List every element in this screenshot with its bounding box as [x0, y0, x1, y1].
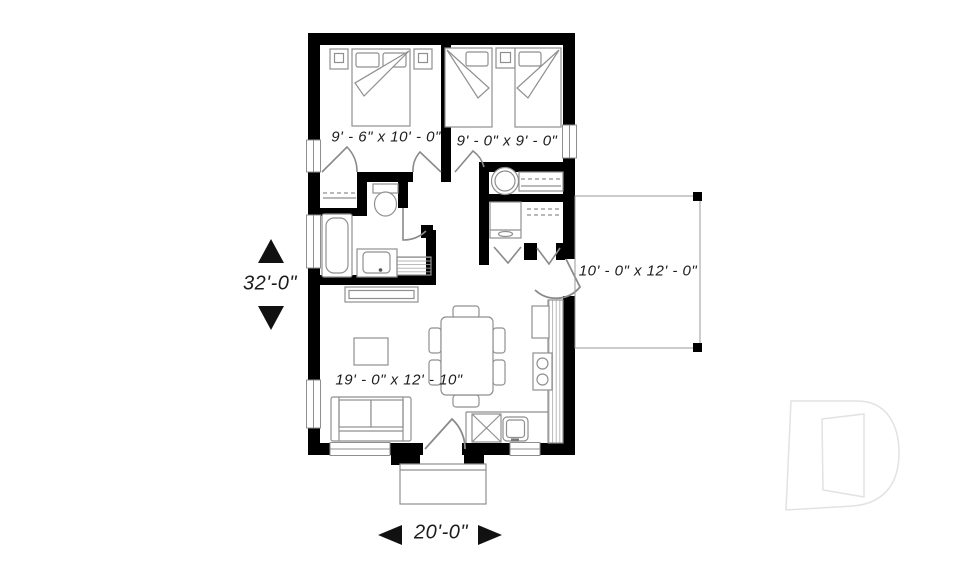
vanity-sink [357, 249, 397, 277]
dresser [490, 202, 521, 238]
nightstand [414, 49, 432, 69]
wall-segment [479, 162, 489, 265]
washer [492, 168, 519, 195]
toilet [373, 184, 398, 216]
bathroom-counter [397, 257, 431, 275]
twin-bed [445, 48, 492, 127]
dishwasher [472, 414, 501, 442]
wall-segment [563, 296, 575, 443]
wall-segment [484, 194, 563, 202]
patio-dimension-label: 10' - 0" x 12' - 0" [579, 263, 697, 280]
dim-arrow-left [378, 525, 402, 545]
console-table [345, 287, 418, 302]
door-swing [322, 147, 357, 172]
pillow [466, 52, 488, 66]
floor-plan: 9' - 6" x 10' - 0" 9' - 0" x 9' - 0" 19'… [0, 0, 960, 569]
overall-height-label: 32'-0" [243, 273, 297, 296]
sofa [331, 397, 411, 441]
bathtub [322, 214, 352, 277]
stove [533, 353, 552, 390]
dim-arrow-right [478, 525, 502, 545]
double-bed [352, 49, 410, 126]
bedroom1-dimension-label: 9' - 6" x 10' - 0" [331, 129, 441, 146]
living-dimension-label: 19' - 0" x 12' - 10" [335, 372, 462, 389]
door-swing [413, 152, 441, 172]
coffee-table [354, 338, 388, 365]
wall-segment [540, 443, 575, 455]
bedroom2-dimension-label: 9' - 0" x 9' - 0" [457, 133, 558, 150]
wall-segment [308, 443, 330, 455]
wall-segment [563, 45, 575, 125]
patio-post [693, 343, 702, 352]
porch-post [464, 447, 484, 465]
twin-bed [515, 48, 561, 127]
bifold-door [494, 247, 521, 263]
floor-plan-drawing [0, 0, 960, 569]
kitchen-sink [503, 417, 528, 442]
door-swing [425, 419, 465, 449]
dining-chair [493, 328, 505, 353]
sofa-cushion [371, 400, 403, 427]
dim-arrow-up [258, 239, 284, 263]
pillow [519, 52, 541, 66]
wall-segment [308, 428, 320, 443]
wall-segment [308, 45, 320, 140]
wall-segment [308, 33, 575, 45]
wall-segment [308, 172, 320, 215]
sofa-cushion [339, 400, 371, 427]
dining-chair [453, 395, 479, 407]
patio-post [693, 192, 702, 201]
dining-chair [493, 360, 505, 385]
porch-post [391, 447, 420, 465]
refrigerator [532, 306, 549, 338]
dining-table [429, 306, 505, 407]
nightstand [330, 49, 348, 69]
dining-chair [429, 328, 441, 353]
pillow [356, 53, 379, 67]
wall-segment [524, 243, 537, 260]
laundry-counter [519, 172, 563, 191]
dining-chair [453, 306, 479, 318]
stoop [400, 464, 486, 504]
closet-shelf [527, 209, 560, 215]
door-swing [535, 259, 580, 298]
dim-arrow-down [258, 306, 284, 330]
drummond-logo [786, 401, 899, 510]
overall-width-label: 20'-0" [414, 522, 468, 545]
closet-shelf [323, 193, 356, 198]
nightstand [496, 48, 515, 68]
wall-segment [398, 172, 408, 208]
